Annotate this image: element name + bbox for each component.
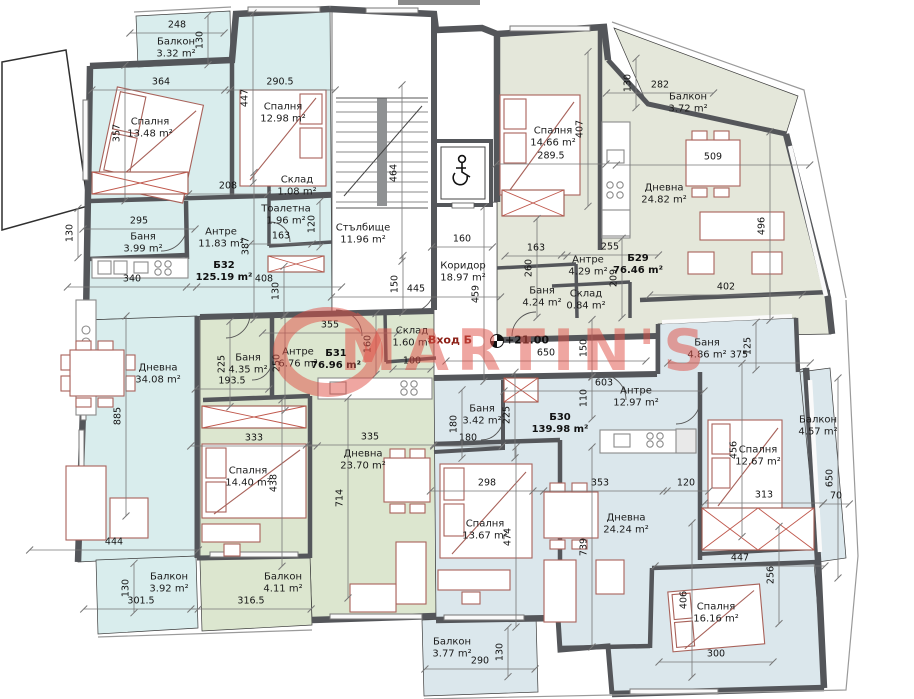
dimension-label: 110 [579,389,590,407]
room-label: Дневна23.70 m² [340,449,386,472]
dimension-label: 150 [390,275,401,293]
dimension-label: 255 [601,242,619,253]
room-label: Балкон3.77 m² [432,637,471,660]
dimension-label: 387 [241,237,252,255]
dimension-label: 256 [766,566,777,584]
room-label: Склад0.84 m² [566,289,605,312]
room-label: Баня4.86 m² [687,338,726,361]
dimension-label: 70 [830,491,842,502]
dimension-label: 163 [272,231,290,242]
entrance-elevation: +21.00 [505,334,549,347]
dimension-label: 313 [755,490,773,501]
dimension-label: 180 [459,433,477,444]
dimension-label: 130 [121,579,132,597]
dimension-label: 509 [704,152,722,163]
floor-plan-canvas: Балкон3.32 m²Спалня13.48 m²Спалня12.98 m… [0,0,914,699]
dimension-label: 209 [609,269,620,287]
room-label: Склад1.08 m² [277,175,316,198]
dimension-label: 120 [677,478,695,489]
dimension-label: 333 [245,433,263,444]
dimension-label: 445 [407,284,425,295]
room-label: Стълбище11.96 m² [336,223,391,246]
room-label: Тоалетна1.96 m² [261,204,310,227]
dimension-label: 225 [502,406,513,424]
dimension-label: 364 [152,77,170,88]
dimension-label: 739 [579,538,590,556]
dimension-label: 353 [591,478,609,489]
elevation-marker-icon [489,333,505,349]
dimension-label: 120 [307,215,318,233]
dimension-label: 496 [757,217,768,235]
unit-label: Б2976.46 m² [613,253,663,277]
dimension-label: 160 [453,234,471,245]
dimension-label: 447 [240,89,251,107]
unit-label: Б30139.98 m² [532,412,589,436]
dimension-label: 298 [478,478,496,489]
dimension-label: 290.5 [266,77,293,88]
dimension-label: 402 [717,282,735,293]
room-label: Спалня12.98 m² [260,102,306,125]
room-label: Баня3.42 m² [462,404,501,427]
dimension-label: 250 [272,354,283,372]
room-label: Балкон4.57 m² [798,415,837,438]
room-label: Спалня14.66 m² [530,126,576,149]
dimension-label: 282 [651,80,669,91]
dimension-label: 163 [527,243,545,254]
room-label: Спалня12.67 m² [735,445,781,468]
room-label: Спалня13.67 m² [462,519,508,542]
unit-label: Б32125.19 m² [196,260,253,284]
dimension-label: 603 [595,378,613,389]
dimension-label: 714 [335,489,346,507]
room-label: Коридор18.97 m² [440,261,486,284]
dimension-label: 375 [730,350,748,361]
dimension-label: 193.5 [218,376,245,387]
dimension-label: 260 [524,259,535,277]
dimension-label: 355 [321,320,339,331]
dimension-label: 100 [403,356,421,367]
dimension-label: 407 [575,120,586,138]
dimension-label: 650 [537,348,555,359]
dimension-label: 160 [363,335,374,353]
dimension-label: 248 [168,20,186,31]
room-label: Балкон3.92 m² [149,572,188,595]
room-label: Дневна24.24 m² [603,513,649,536]
dimension-label: 301.5 [127,596,154,607]
room-label: Спалня16.16 m² [693,602,739,625]
room-label: Спалня14.40 m² [225,466,271,489]
room-label: Спалня13.48 m² [127,117,173,140]
room-label: Балкон3.72 m² [668,92,707,115]
room-label: Баня3.99 m² [123,232,162,255]
labels-layer: Балкон3.32 m²Спалня13.48 m²Спалня12.98 m… [0,0,914,699]
dimension-label: 474 [503,528,514,546]
dimension-label: 316.5 [237,596,264,607]
room-label: Антре4.29 m² [568,255,607,278]
dimension-label: 357 [112,124,123,142]
room-label: Балкон4.11 m² [263,572,302,595]
room-label: Антре11.83 m² [198,227,244,250]
room-label: Дневна34.08 m² [135,363,181,386]
unit-label: Б3176.96 m² [311,348,361,372]
room-label: Баня4.35 m² [228,353,267,376]
dimension-label: 130 [623,74,634,92]
room-label: Балкон3.32 m² [156,37,195,60]
room-label: Склад1.60 m² [392,326,431,349]
entrance-label: Вход Б [428,334,472,347]
dimension-label: 885 [113,407,124,425]
dimension-label: 456 [729,441,740,459]
dimension-label: 130 [495,643,506,661]
dimension-label: 335 [361,432,379,443]
dimension-label: 289.5 [537,151,564,162]
dimension-label: 290 [471,656,489,667]
dimension-label: 459 [471,285,482,303]
room-label: Дневна24.82 m² [641,183,687,206]
dimension-label: 340 [123,274,141,285]
dimension-label: 438 [269,474,280,492]
dimension-label: 225 [217,355,228,373]
dimension-label: 464 [389,164,400,182]
dimension-label: 447 [731,553,749,564]
dimension-label: 150 [579,339,590,357]
room-label: Баня4.24 m² [522,286,561,309]
dimension-label: 130 [195,31,206,49]
room-label: Антре12.97 m² [613,386,659,409]
dimension-label: 444 [105,537,123,548]
dimension-label: 208 [219,181,237,192]
dimension-label: 650 [825,469,836,487]
dimension-label: 406 [679,591,690,609]
dimension-label: 130 [271,282,282,300]
dimension-label: 295 [130,216,148,227]
dimension-label: 130 [65,224,76,242]
dimension-label: 300 [707,649,725,660]
dimension-label: 180 [449,415,460,433]
